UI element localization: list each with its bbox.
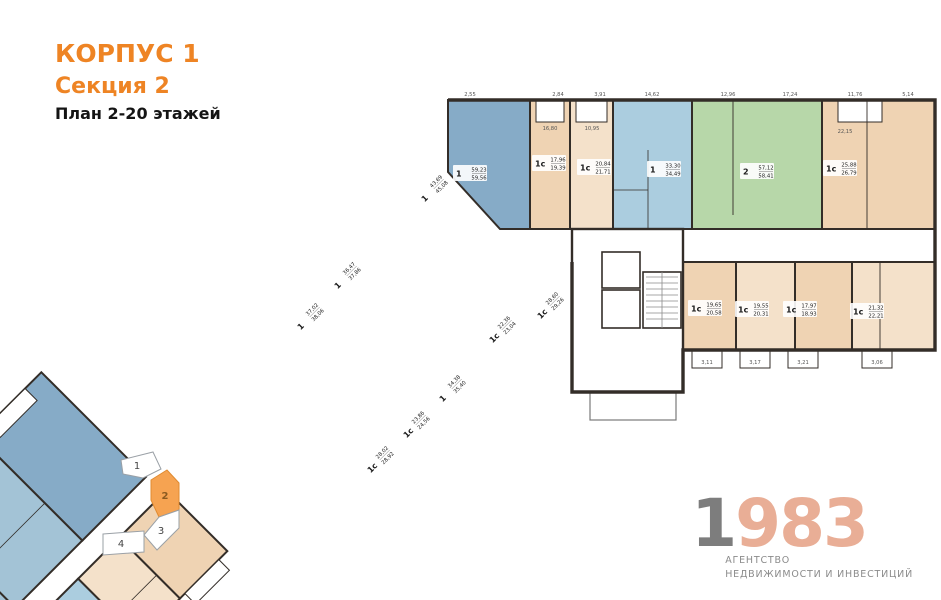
apt-type: 1с (580, 164, 591, 173)
dim-label: 2,55 (464, 92, 476, 98)
apt-total: 21,71 (595, 170, 610, 176)
dim-label: 3,11 (701, 360, 713, 366)
apt-type: 1с (826, 165, 837, 174)
apartment-label: 1с 28,02 28,92 (360, 443, 396, 479)
apt-area: 17,96 (550, 158, 566, 164)
apt-area: 17,97 (801, 304, 816, 310)
apt-total: 34,49 (665, 172, 680, 178)
apartment-label: 1с 25,88 26,79 (823, 160, 857, 177)
minimap-label-4: 4 (118, 539, 124, 550)
apartment-label: 1с 19,65 20,58 (688, 300, 722, 317)
apartment-label: 1 37,02 38,06 (290, 300, 326, 336)
dim-label: 3,21 (797, 360, 809, 366)
entrance-balcony (590, 392, 676, 420)
minimap-label-1: 1 (134, 461, 140, 472)
apt-area: 19,55 (753, 304, 768, 310)
apt-type: 1 (650, 166, 656, 175)
apt-area: 21,32 (868, 306, 883, 312)
apartment-label: 1с 17,97 18,93 (783, 301, 817, 318)
apartment-label: 1 34,38 35,40 (432, 372, 468, 408)
apt-total: 19,39 (550, 166, 565, 172)
floor-plan-page: КОРПУС 1 Секция 2 План 2-20 этажей (0, 0, 941, 600)
apt-area: 19,65 (706, 303, 721, 309)
apt-total: 26,79 (841, 171, 856, 177)
apt-total: 59,56 (471, 176, 487, 182)
dim-label: 3,17 (749, 360, 761, 366)
apartment-label: 1с 21,32 22,21 (850, 303, 884, 320)
loggia (536, 100, 564, 122)
apartment-label: 1с 19,55 20,31 (735, 301, 769, 318)
agency-logo: 1983 АГЕНТСТВО НЕДВИЖИМОСТИ И ИНВЕСТИЦИЙ (691, 494, 913, 582)
apt-type: 1с (786, 306, 797, 315)
apt-type: 2 (743, 168, 749, 177)
loggia (576, 100, 607, 122)
apt-total: 18,93 (801, 312, 816, 318)
apartment-label: 1с 22,36 23,04 (482, 313, 518, 349)
dim-label: 12,96 (721, 92, 736, 98)
apartment-label: 1с 28,60 29,26 (530, 289, 566, 325)
dim-label: 5,14 (902, 92, 914, 98)
apt-total: 20,58 (706, 311, 722, 317)
dim-label: 3,06 (871, 360, 883, 366)
apt-area: 20,84 (595, 162, 611, 168)
apt-area: 33,30 (665, 164, 681, 170)
apt-area: 59,23 (471, 168, 486, 174)
dim-label: 17,24 (783, 92, 799, 98)
apt-area: 25,88 (841, 163, 857, 169)
apartment-unit-1[interactable] (448, 100, 530, 229)
dim-label: 10,95 (585, 126, 600, 132)
apartment-label: 1 33,30 34,49 (647, 161, 681, 178)
apt-type: 1с (691, 305, 702, 314)
dim-label: 2,84 (552, 92, 564, 98)
logo-year-prefix: 1 (691, 485, 735, 562)
logo-year: 1983 (691, 494, 913, 553)
apartment-label: 1с 23,86 24,56 (396, 408, 432, 444)
elevator-shaft (602, 290, 640, 328)
apt-type: 1с (738, 306, 749, 315)
dim-label: 16,80 (543, 126, 558, 132)
dim-label: 22,15 (838, 129, 853, 135)
top-row-units (448, 100, 935, 229)
minimap-section-1[interactable] (121, 452, 161, 478)
apartment-label: 2 57,12 58,41 (740, 163, 774, 180)
minimap-label-3: 3 (158, 526, 164, 537)
apartment-label: 1 36,47 37,86 (327, 259, 363, 295)
apartment-label: 1 43,69 45,08 (414, 172, 450, 208)
loggia (838, 100, 882, 122)
apt-total: 22,21 (868, 314, 883, 320)
logo-tagline-2: НЕДВИЖИМОСТИ И ИНВЕСТИЦИЙ (725, 568, 913, 582)
apt-type: 1 (456, 170, 462, 179)
minimap-label-2: 2 (162, 491, 169, 502)
apartment-label: 1 59,23 59,56 (453, 165, 487, 182)
apt-total: 58,41 (758, 174, 773, 180)
dim-label: 3,91 (594, 92, 606, 98)
logo-year-rest: 983 (735, 485, 867, 562)
apartment-label: 1с 20,84 21,71 (577, 159, 611, 176)
dim-label: 14,62 (645, 92, 660, 98)
apt-type: 1с (535, 160, 546, 169)
dim-label: 11,76 (848, 92, 863, 98)
apartment-label: 1с 17,96 19,39 (532, 155, 566, 172)
apt-total: 20,31 (753, 312, 768, 318)
apt-type: 1с (853, 308, 864, 317)
elevator-shaft (602, 252, 640, 288)
apt-area: 57,12 (758, 166, 773, 172)
diagonal-wing (0, 369, 238, 600)
